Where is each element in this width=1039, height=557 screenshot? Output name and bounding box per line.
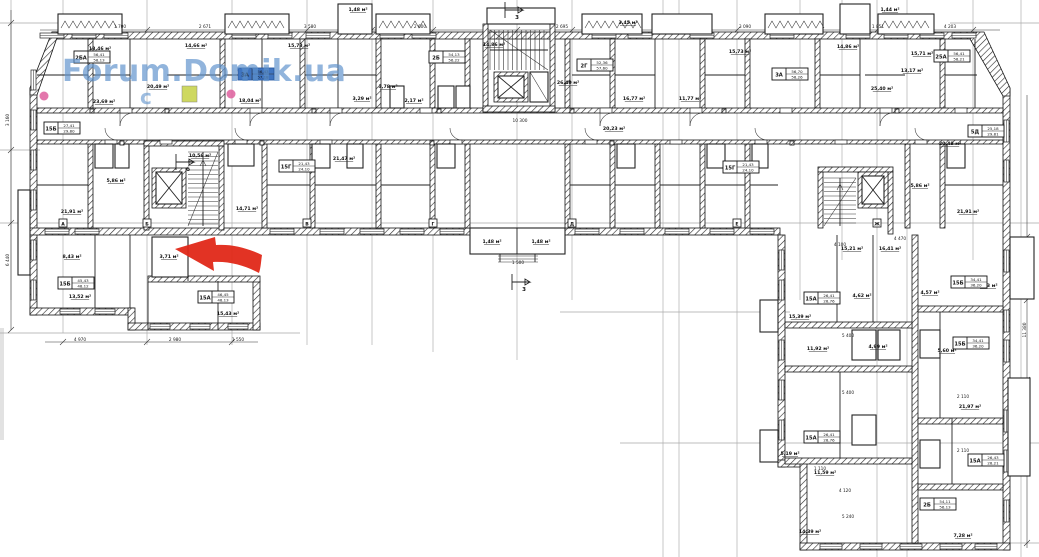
svg-text:56,22: 56,22	[448, 58, 460, 63]
room-area-label: 5,19 м²	[780, 451, 799, 457]
watermark-fragment: c	[140, 85, 152, 109]
apartment-label: 15Г21,4324,10	[723, 161, 759, 173]
room-area-label: 15,43 м²	[217, 311, 239, 317]
pink-dot-left	[40, 92, 49, 101]
dimension-label: 2 110	[957, 448, 970, 454]
dimension-label: 2 695	[556, 24, 569, 30]
pink-dot-right	[227, 90, 236, 99]
room-area-label: 3,78 м²	[378, 84, 397, 90]
svg-text:25,18: 25,18	[987, 126, 999, 131]
svg-text:15Г: 15Г	[725, 166, 736, 172]
svg-text:27,41: 27,41	[63, 123, 75, 128]
axis-letter-tag: Ж	[873, 219, 881, 228]
apartment-label: 15А46,4548,13	[198, 291, 234, 303]
svg-text:25А: 25А	[935, 55, 946, 61]
room-area-label: 20,23 м²	[603, 126, 625, 132]
svg-text:15Б: 15Б	[954, 342, 965, 348]
apartment-label: 3А56,7058,26	[772, 68, 808, 80]
scan-edge	[0, 328, 4, 440]
svg-text:Г: Г	[432, 222, 435, 228]
svg-text:3А: 3А	[775, 73, 783, 79]
svg-text:48,12: 48,12	[77, 284, 89, 289]
svg-text:54,11: 54,11	[939, 499, 951, 504]
svg-text:2Б: 2Б	[432, 56, 440, 62]
room-area-label: 26,40 м²	[557, 80, 579, 86]
dimension-label: 5 400	[842, 333, 855, 339]
axis-letter-tag: А	[59, 219, 67, 228]
apartment-label: 15Б34,4136,20	[951, 276, 987, 288]
dimension-label: 3 090	[739, 24, 752, 30]
svg-text:б: б	[186, 166, 190, 173]
apartment-label: 15Б34,4136,20	[953, 337, 989, 349]
apartment-label: 15А26,4128,76	[804, 292, 840, 304]
room-area-label: 11,77 м²	[679, 96, 701, 102]
dimension-label: 11 380	[1022, 322, 1028, 337]
floorplan-page: 13,46 м²14,66 м²15,73 м²20,49 м²23,69 м²…	[0, 0, 1039, 557]
svg-text:46,45: 46,45	[217, 292, 229, 297]
dimension-label: 1 700	[114, 24, 127, 30]
room-area-label: 25,40 м²	[871, 86, 893, 92]
svg-text:34,41: 34,41	[972, 338, 984, 343]
dimension-label: 4 203	[944, 24, 957, 30]
room-area-label: 14,86 м²	[483, 42, 505, 48]
apartment-label: 15Б45,4348,12	[58, 277, 94, 289]
svg-text:3: 3	[522, 287, 526, 293]
svg-text:45,43: 45,43	[77, 278, 89, 283]
room-area-label: 15,73 м²	[288, 43, 310, 49]
room-area-label: 20,48 м²	[939, 141, 961, 147]
room-area-label: 5,86 м²	[910, 183, 929, 189]
apartment-label: 15А26,4328,21	[968, 454, 1004, 466]
svg-text:26,43: 26,43	[987, 455, 999, 460]
svg-text:36,20: 36,20	[970, 283, 982, 288]
svg-text:Е: Е	[735, 222, 738, 228]
dimension-label: 4 470	[894, 236, 907, 242]
room-area-label: 11,92 м²	[807, 346, 829, 352]
room-area-label: 13,52 м²	[69, 294, 91, 300]
svg-text:3: 3	[515, 15, 519, 21]
svg-text:2Б: 2Б	[923, 503, 931, 509]
room-area-label: 3,71 м²	[159, 254, 178, 260]
room-area-label: 1,48 м²	[482, 239, 501, 245]
svg-text:2Г: 2Г	[581, 64, 589, 70]
svg-text:15Б: 15Б	[59, 282, 70, 288]
svg-text:28,21: 28,21	[987, 461, 999, 466]
svg-text:56,70: 56,70	[791, 69, 803, 74]
dimension-label: 4 970	[74, 337, 87, 343]
room-area-label: 14,66 м²	[185, 43, 207, 49]
svg-text:15А: 15А	[805, 297, 816, 303]
apartment-label: 5Д25,1829,81	[968, 125, 1004, 137]
room-area-label: 15,71 м²	[911, 51, 933, 57]
svg-text:58,26: 58,26	[791, 75, 803, 80]
room-area-label: 21,91 м²	[61, 209, 83, 215]
apartment-label: 2Б54,1156,13	[920, 498, 956, 510]
room-area-label: 18,04 м²	[239, 98, 261, 104]
svg-text:24,10: 24,10	[298, 167, 310, 172]
room-area-label: 4,99 м²	[868, 344, 887, 350]
room-area-label: 21,91 м²	[957, 209, 979, 215]
dimension-label: 1 110	[814, 466, 827, 472]
dimension-label: 4 100	[834, 242, 847, 248]
apartment-label: 15А26,4128,76	[804, 431, 840, 443]
svg-text:В: В	[305, 222, 309, 228]
apartment-label: 2Б54,1356,22	[429, 51, 465, 63]
dimension-label: 2 671	[199, 24, 212, 30]
axis-letter-tag: Г	[429, 219, 437, 228]
svg-text:36,20: 36,20	[972, 344, 984, 349]
dimension-label: 10 300	[512, 118, 527, 124]
apartment-label: 25А56,4158,21	[934, 50, 970, 62]
dimension-label: 2 110	[957, 394, 970, 400]
svg-text:15А: 15А	[199, 296, 210, 302]
axis-letter-tag: Б	[143, 219, 151, 228]
floorplan-canvas: 13,46 м²14,66 м²15,73 м²20,49 м²23,69 м²…	[0, 0, 1039, 557]
svg-text:29,81: 29,81	[987, 132, 999, 137]
room-area-label: 21,97 м²	[959, 404, 981, 410]
axis-letter-tag: Д	[568, 219, 576, 228]
room-area-label: 14,86 м²	[837, 44, 859, 50]
room-area-label: 21,47 м²	[333, 156, 355, 162]
apartment-label: 2Г52,3657,60	[577, 59, 613, 71]
svg-text:52,36: 52,36	[596, 60, 608, 65]
room-area-label: 2,17 м²	[404, 98, 423, 104]
svg-text:48,13: 48,13	[217, 298, 229, 303]
dimension-label: 3 580	[304, 24, 317, 30]
axis-letter-tag: Е	[733, 219, 741, 228]
svg-text:Д: Д	[570, 222, 574, 228]
room-area-label: 15,73 м²	[729, 49, 751, 55]
svg-text:Ж: Ж	[874, 222, 880, 228]
room-area-label: 14,71 м²	[236, 206, 258, 212]
svg-text:21,43: 21,43	[298, 161, 310, 166]
axis-letter-tag: В	[303, 219, 311, 228]
watermark-text: Forum.Domik.ua	[62, 54, 346, 89]
dimension-label: 5 400	[842, 390, 855, 396]
dimension-label: 4 120	[839, 488, 852, 494]
room-area-label: 3,29 м²	[352, 96, 371, 102]
room-area-label: 7,28 м²	[953, 533, 972, 539]
svg-text:5Д: 5Д	[971, 130, 980, 136]
svg-text:26,41: 26,41	[823, 293, 835, 298]
svg-text:Б: Б	[145, 222, 149, 228]
svg-text:А: А	[61, 222, 65, 228]
svg-text:15А: 15А	[969, 459, 980, 465]
room-area-label: 23,69 м²	[93, 99, 115, 105]
dimension-label: 5 240	[842, 514, 855, 520]
dimension-label: 2 600	[414, 24, 427, 30]
svg-text:56,41: 56,41	[953, 51, 965, 56]
dimension-label: 6 440	[5, 254, 11, 267]
svg-text:57,60: 57,60	[596, 66, 608, 71]
room-area-label: 16,41 м²	[879, 246, 901, 252]
apartment-label: 15Б27,4129,80	[44, 122, 80, 134]
room-area-label: 1,48 м²	[531, 239, 550, 245]
room-area-label: 16,77 м²	[623, 96, 645, 102]
dimension-label: 1 500	[512, 260, 525, 266]
dimension-label: 3 160	[5, 114, 11, 127]
svg-text:24,10: 24,10	[742, 168, 754, 173]
svg-text:26,41: 26,41	[823, 432, 835, 437]
svg-text:15Б: 15Б	[45, 127, 56, 133]
svg-text:34,41: 34,41	[970, 277, 982, 282]
dimension-label: 1 851	[872, 24, 885, 30]
svg-text:15А: 15А	[805, 436, 816, 442]
room-area-label: 10,56 м²	[189, 153, 211, 159]
room-area-label: 4,57 м²	[920, 290, 939, 296]
room-area-label: 1,44 м²	[880, 7, 899, 13]
room-area-label: 14,39 м²	[799, 529, 821, 535]
svg-text:15Г: 15Г	[281, 165, 292, 171]
room-area-label: 13,17 м²	[901, 68, 923, 74]
dimension-label: 2 980	[169, 337, 182, 343]
svg-text:28,76: 28,76	[823, 438, 835, 443]
room-area-label: 5,86 м²	[106, 178, 125, 184]
dimension-label: 1 550	[232, 337, 245, 343]
svg-text:28,76: 28,76	[823, 299, 835, 304]
apartment-label: 15Г21,4324,10	[279, 160, 315, 172]
svg-text:56,13: 56,13	[939, 505, 951, 510]
room-area-label: 4,62 м²	[852, 293, 871, 299]
svg-text:54,13: 54,13	[448, 52, 460, 57]
svg-text:21,43: 21,43	[742, 162, 754, 167]
svg-text:58,21: 58,21	[953, 57, 965, 62]
svg-text:15Б: 15Б	[952, 281, 963, 287]
svg-text:29,80: 29,80	[63, 129, 75, 134]
room-area-label: 3,45 м²	[618, 20, 637, 26]
room-area-label: 8,43 м²	[62, 254, 81, 260]
room-area-label: 15,39 м²	[789, 314, 811, 320]
room-area-label: 1,48 м²	[348, 7, 367, 13]
